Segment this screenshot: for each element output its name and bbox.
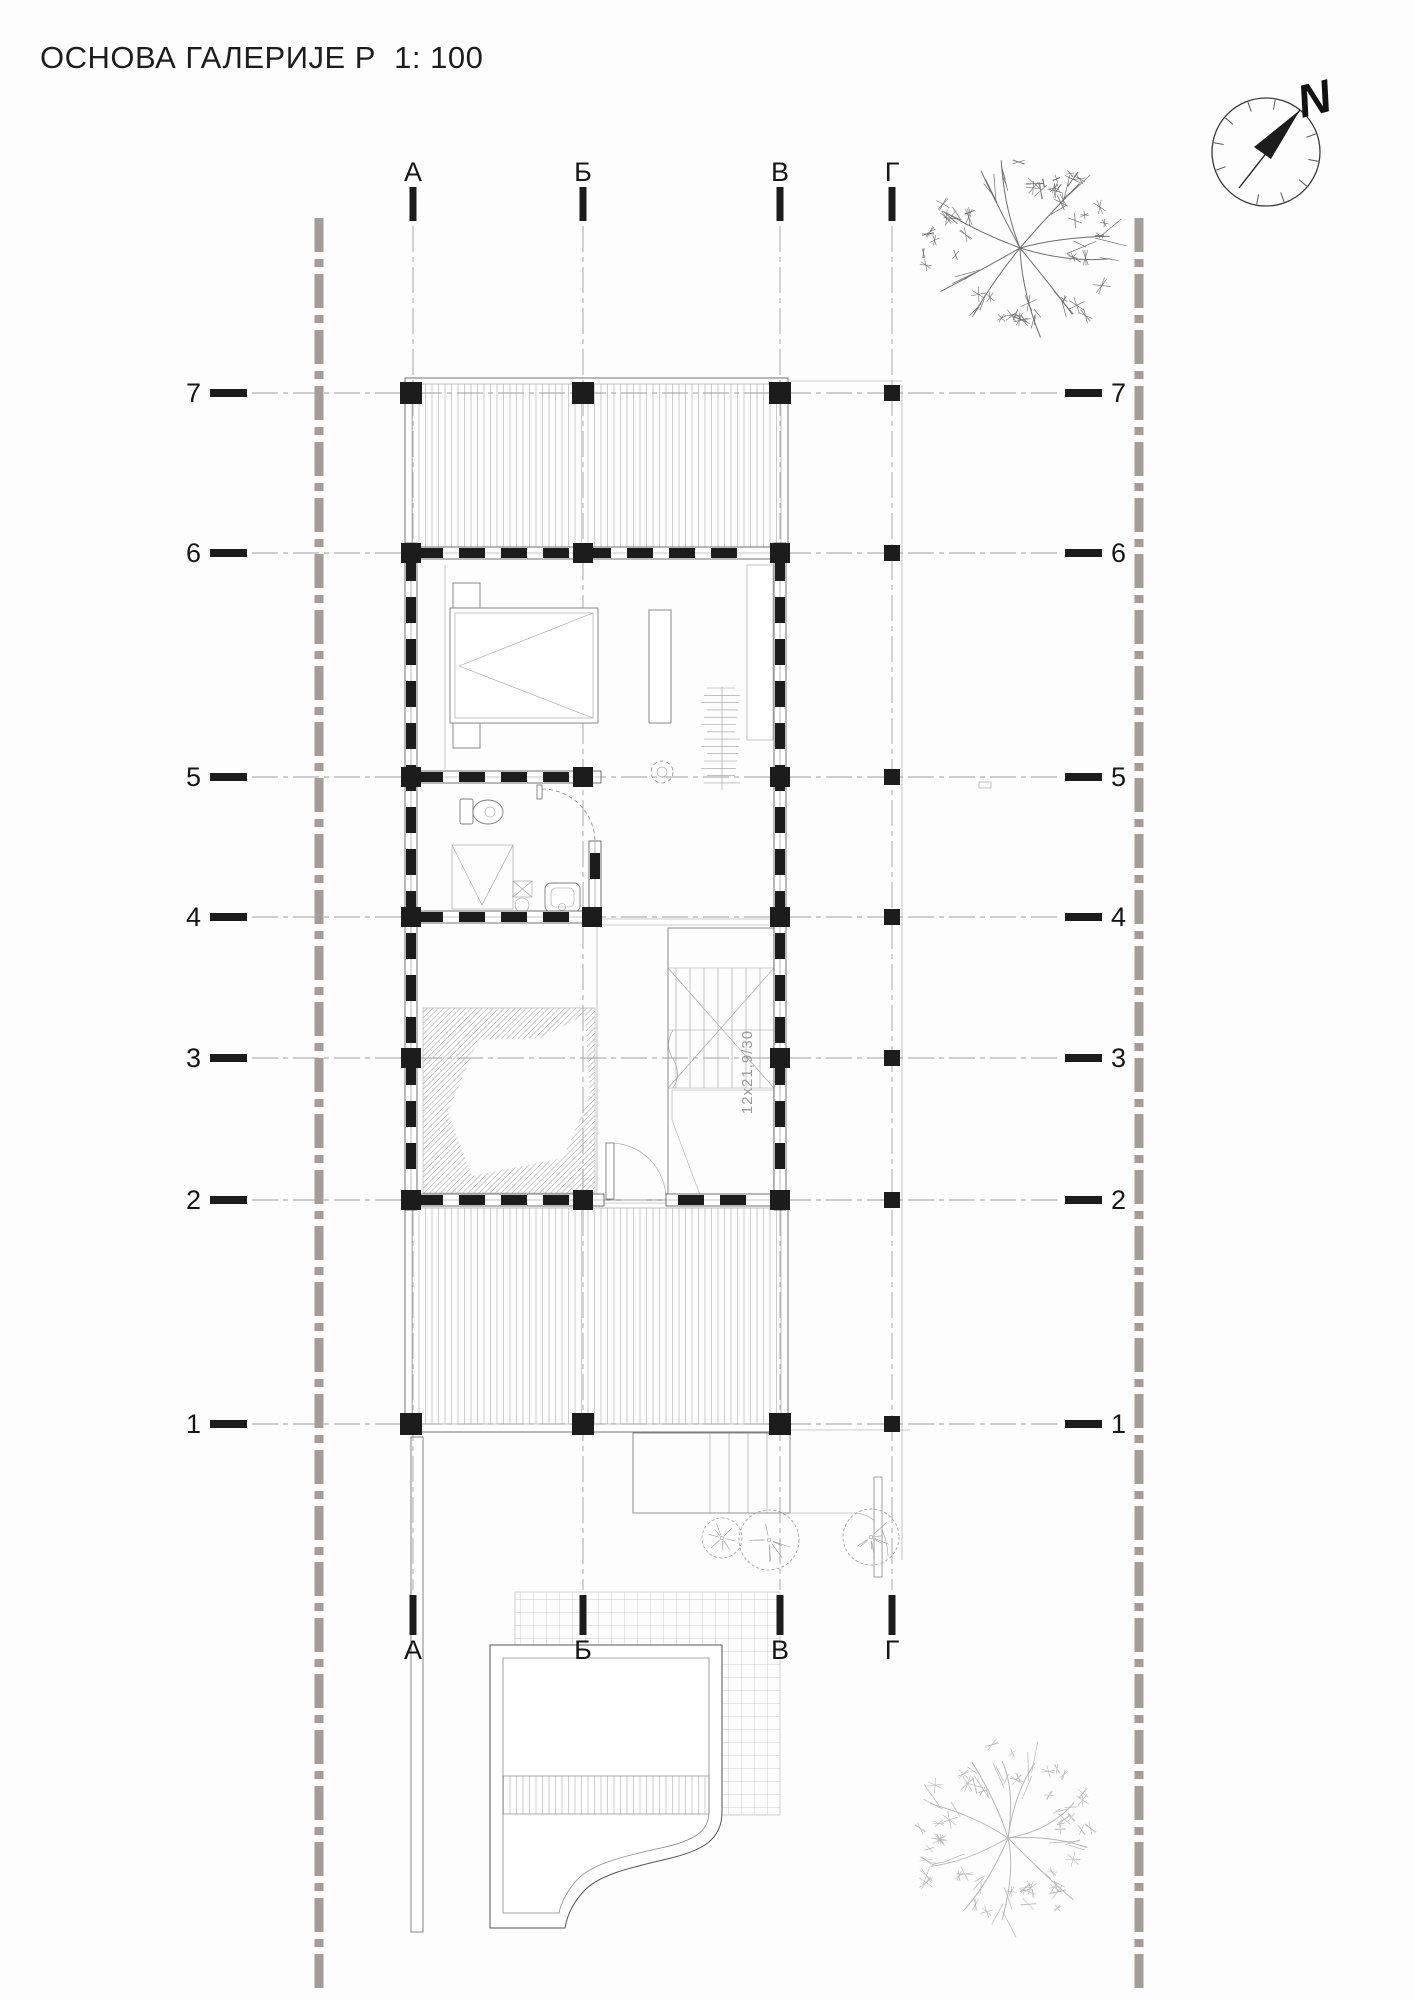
potted-plant [651,761,673,783]
stair-dimension-note: 12x21,9/30 [739,1030,756,1114]
shower [452,845,513,909]
path-corner-arc [856,1513,888,1556]
furniture [445,565,991,1203]
grid-row-label-left: 2 [186,1185,201,1215]
grid-row-label-right: 3 [1111,1043,1126,1073]
gallery-bench [649,610,671,723]
site-marker [979,782,991,788]
toilet [460,799,503,824]
grid-col-label-bottom: В [771,1635,789,1665]
grid-col-label-bottom: Г [885,1635,900,1665]
grid-row-label-right: 4 [1111,902,1126,932]
void-hatches [423,1008,774,1195]
compass-needle-fill [1254,110,1300,159]
grid-row-label-right: 5 [1111,762,1126,792]
grid-col-label-bottom: А [404,1635,422,1665]
entry-door [604,1143,666,1203]
planter-wall [874,1477,882,1577]
top-deck-boards [412,384,781,551]
window-counter [747,565,773,740]
annex-steps-band [503,1776,709,1814]
grid-row-label-right: 6 [1111,538,1126,568]
north-label: N [1292,69,1338,128]
tree-plan-bottom [915,1739,1096,1937]
grid-row-label-left: 3 [186,1043,201,1073]
grid-labels: А Б В Г А Б В Г 7 6 5 4 3 2 1 7 6 5 4 3 … [186,157,1126,1665]
floor-plan-drawing: N А Б В Г А Б В Г 7 6 5 4 3 2 1 7 6 5 4 … [0,0,1414,2000]
grid-row-label-left: 7 [186,378,201,408]
grid-col-label-top: А [404,157,422,187]
grid-col-label-top: Г [885,157,900,187]
grid-row-label-right: 7 [1111,378,1126,408]
grid-row-label-left: 4 [186,902,201,932]
grid-col-label-bottom: Б [574,1635,592,1665]
grid-row-label-right: 1 [1111,1409,1126,1439]
grid-row-label-right: 2 [1111,1185,1126,1215]
grid-row-label-left: 6 [186,538,201,568]
entry-steps [633,1433,790,1513]
nightstand [453,583,480,608]
shrubs [702,1509,899,1570]
grid-col-label-top: Б [574,157,592,187]
floor-plan-page: ОСНОВА ГАЛЕРИЈЕ Р 1: 100 [0,0,1414,2000]
double-bed [450,608,598,723]
site-landscape [411,1433,888,1932]
nightstand [453,723,480,748]
grid-col-label-top: В [771,157,789,187]
gallery-railing [701,687,740,790]
grid-row-label-left: 5 [186,762,201,792]
stair-void-hatch [672,1090,774,1195]
bathroom-door [537,785,595,842]
grid-row-label-left: 1 [186,1409,201,1439]
tree-plan-top [920,160,1126,338]
north-compass: N [1212,69,1337,206]
washing-machine [513,881,532,912]
staircase [668,928,774,1205]
bottom-deck-boards [412,1208,781,1424]
room-void-hatch [423,1008,595,1193]
